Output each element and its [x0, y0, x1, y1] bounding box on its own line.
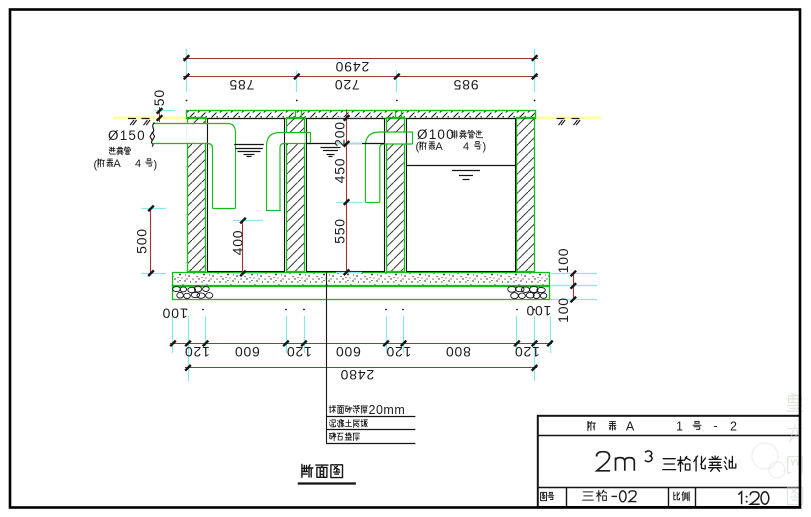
svg-text:785: 785: [229, 77, 255, 93]
svg-text:): ): [154, 159, 158, 171]
svg-text:20mm: 20mm: [369, 403, 406, 417]
svg-text:1: 1: [676, 420, 683, 434]
svg-text:(: (: [416, 141, 420, 153]
svg-text:Ø150: Ø150: [108, 128, 146, 143]
svg-text:120: 120: [514, 344, 540, 360]
svg-text:450: 450: [331, 158, 347, 184]
svg-text:4: 4: [135, 158, 141, 170]
svg-text:2480: 2480: [340, 367, 374, 383]
svg-text:100: 100: [526, 303, 552, 319]
svg-text:4: 4: [463, 141, 469, 153]
svg-text:Ø100: Ø100: [417, 127, 455, 142]
svg-text:400: 400: [230, 230, 246, 256]
svg-text:600: 600: [234, 344, 260, 360]
svg-text:(: (: [94, 159, 98, 171]
svg-text:120: 120: [184, 344, 210, 360]
svg-text:200: 200: [331, 121, 347, 147]
svg-text:500: 500: [134, 228, 150, 254]
svg-text:2: 2: [730, 420, 737, 434]
svg-text:720: 720: [334, 77, 360, 93]
svg-text:550: 550: [331, 218, 347, 244]
svg-text:A: A: [626, 420, 635, 434]
svg-text:-: -: [713, 419, 717, 433]
svg-text:): ): [483, 141, 487, 153]
svg-text:2490: 2490: [335, 59, 369, 75]
svg-text:600: 600: [335, 344, 361, 360]
svg-text:120: 120: [386, 344, 412, 360]
svg-text:100: 100: [555, 297, 571, 323]
svg-text:A: A: [435, 141, 443, 153]
svg-text:A: A: [113, 158, 121, 170]
svg-text:800: 800: [445, 344, 471, 360]
svg-text:120: 120: [286, 344, 312, 360]
svg-text:100: 100: [555, 248, 571, 274]
svg-text:985: 985: [453, 77, 479, 93]
svg-text:100: 100: [162, 306, 188, 322]
svg-text:50: 50: [151, 89, 167, 106]
